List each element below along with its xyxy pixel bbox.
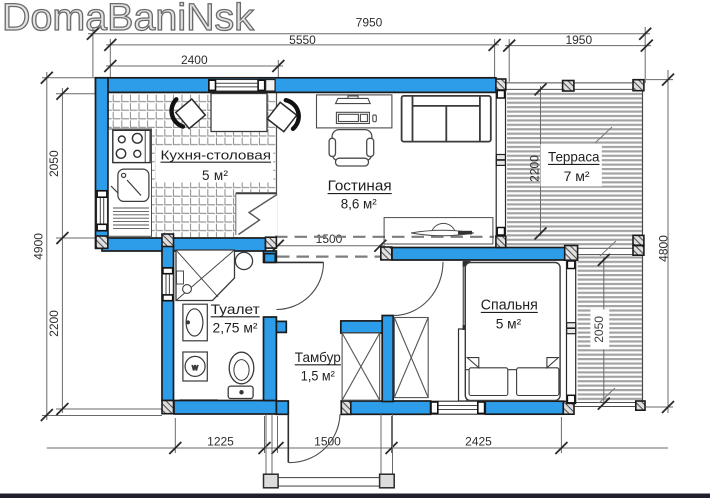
svg-text:1,5 м²: 1,5 м² — [301, 368, 335, 384]
svg-text:5 м²: 5 м² — [202, 168, 229, 183]
svg-text:Тамбур: Тамбур — [295, 349, 341, 365]
svg-text:2050: 2050 — [592, 316, 606, 343]
svg-text:1225: 1225 — [207, 435, 234, 449]
svg-text:DomaBaniNsk: DomaBaniNsk — [2, 0, 255, 39]
svg-text:2200: 2200 — [47, 310, 61, 337]
svg-text:Терраса: Терраса — [548, 149, 600, 165]
svg-text:1950: 1950 — [565, 33, 592, 47]
svg-text:w: w — [191, 363, 198, 372]
svg-text:4800: 4800 — [657, 235, 671, 262]
svg-text:1500: 1500 — [316, 232, 343, 246]
svg-text:Спальня: Спальня — [481, 298, 538, 314]
svg-text:8,6 м²: 8,6 м² — [341, 196, 377, 212]
svg-text:4900: 4900 — [32, 233, 46, 260]
svg-text:Кухня-столовая: Кухня-столовая — [161, 148, 272, 163]
svg-text:2,75 м²: 2,75 м² — [213, 320, 258, 336]
svg-text:2050: 2050 — [47, 150, 61, 177]
svg-text:2200: 2200 — [528, 155, 542, 182]
svg-text:2425: 2425 — [465, 435, 492, 449]
svg-text:Туалет: Туалет — [211, 301, 261, 317]
svg-text:Гостиная: Гостиная — [328, 179, 392, 195]
svg-text:5 м²: 5 м² — [496, 316, 522, 332]
svg-text:7950: 7950 — [356, 16, 383, 30]
svg-text:7 м²: 7 м² — [564, 168, 590, 184]
svg-text:2400: 2400 — [181, 53, 208, 67]
svg-text:1500: 1500 — [314, 435, 341, 449]
svg-text:5550: 5550 — [289, 33, 316, 47]
